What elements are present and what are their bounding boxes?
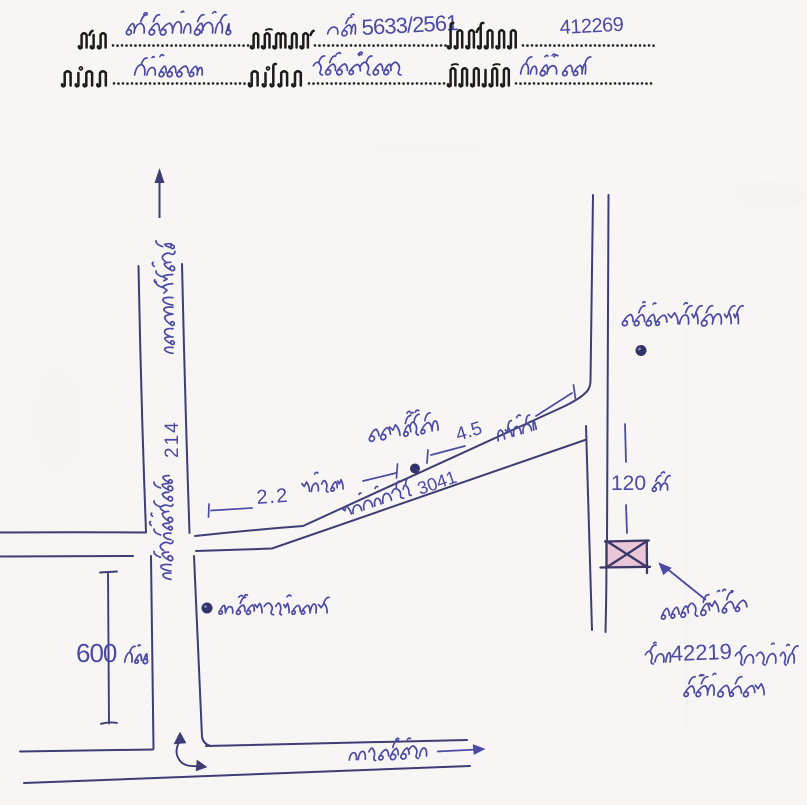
svg-text:120: 120 — [611, 472, 646, 495]
svg-text:214: 214 — [162, 420, 183, 458]
svg-text:2.2: 2.2 — [256, 485, 290, 509]
svg-text:600: 600 — [76, 638, 117, 668]
svg-text:42219: 42219 — [670, 639, 732, 666]
svg-text:5633/2561: 5633/2561 — [361, 10, 459, 40]
svg-text:412269: 412269 — [559, 14, 624, 39]
